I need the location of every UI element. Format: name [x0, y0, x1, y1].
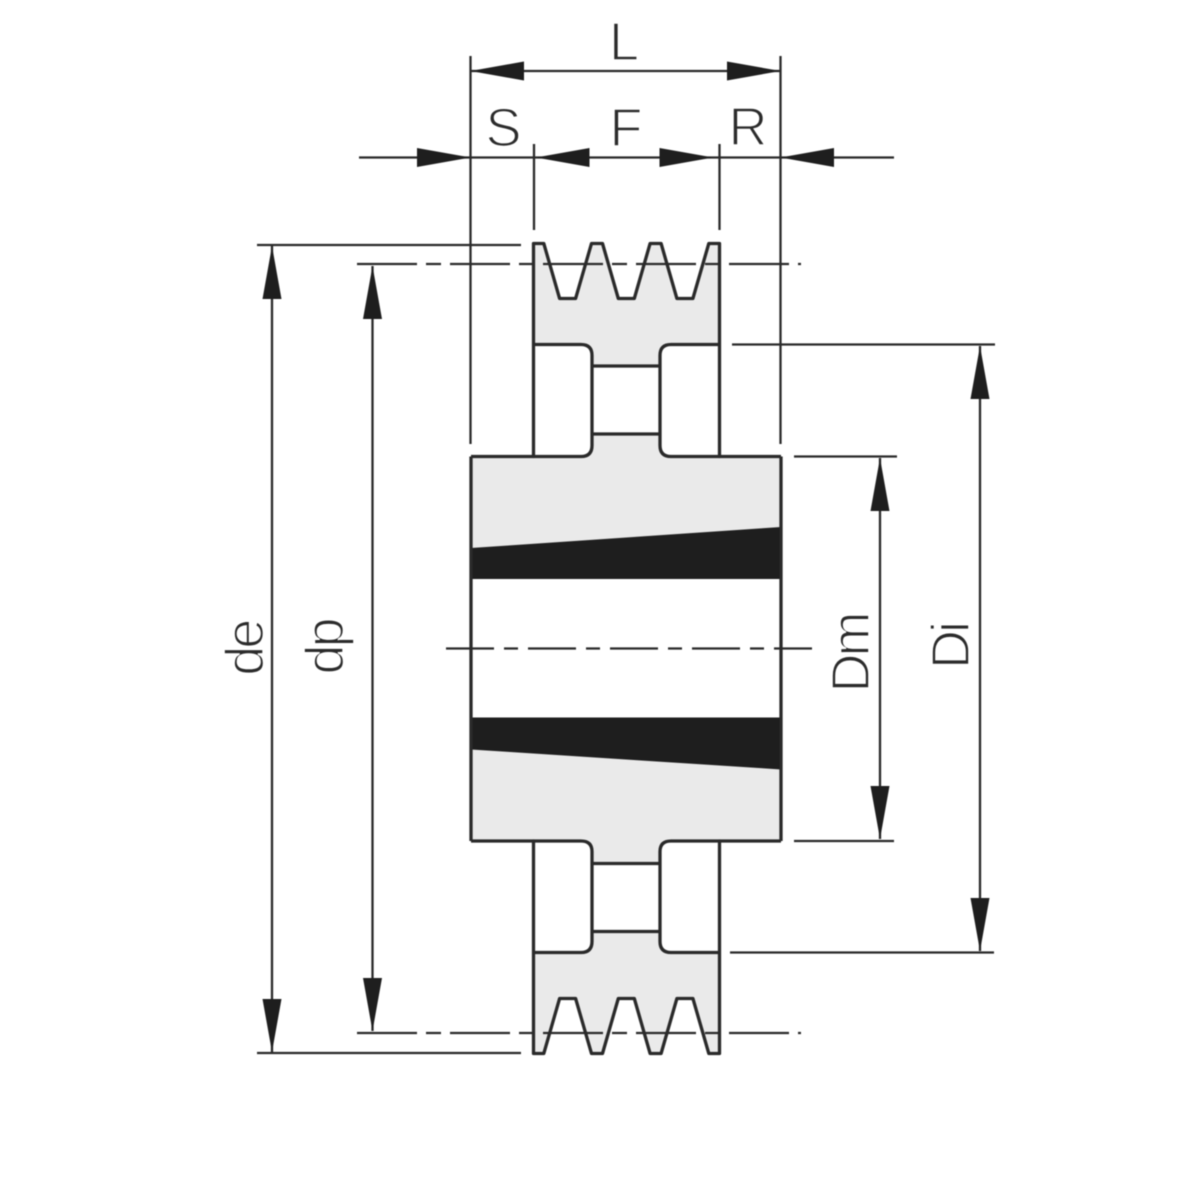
svg-text:de: de: [215, 621, 275, 676]
svg-text:Dm: Dm: [821, 614, 881, 692]
svg-text:L: L: [609, 12, 639, 72]
svg-text:dp: dp: [295, 620, 355, 675]
svg-text:R: R: [729, 97, 768, 157]
svg-text:Di: Di: [921, 624, 981, 669]
svg-text:F: F: [610, 98, 643, 158]
svg-text:S: S: [485, 98, 521, 158]
